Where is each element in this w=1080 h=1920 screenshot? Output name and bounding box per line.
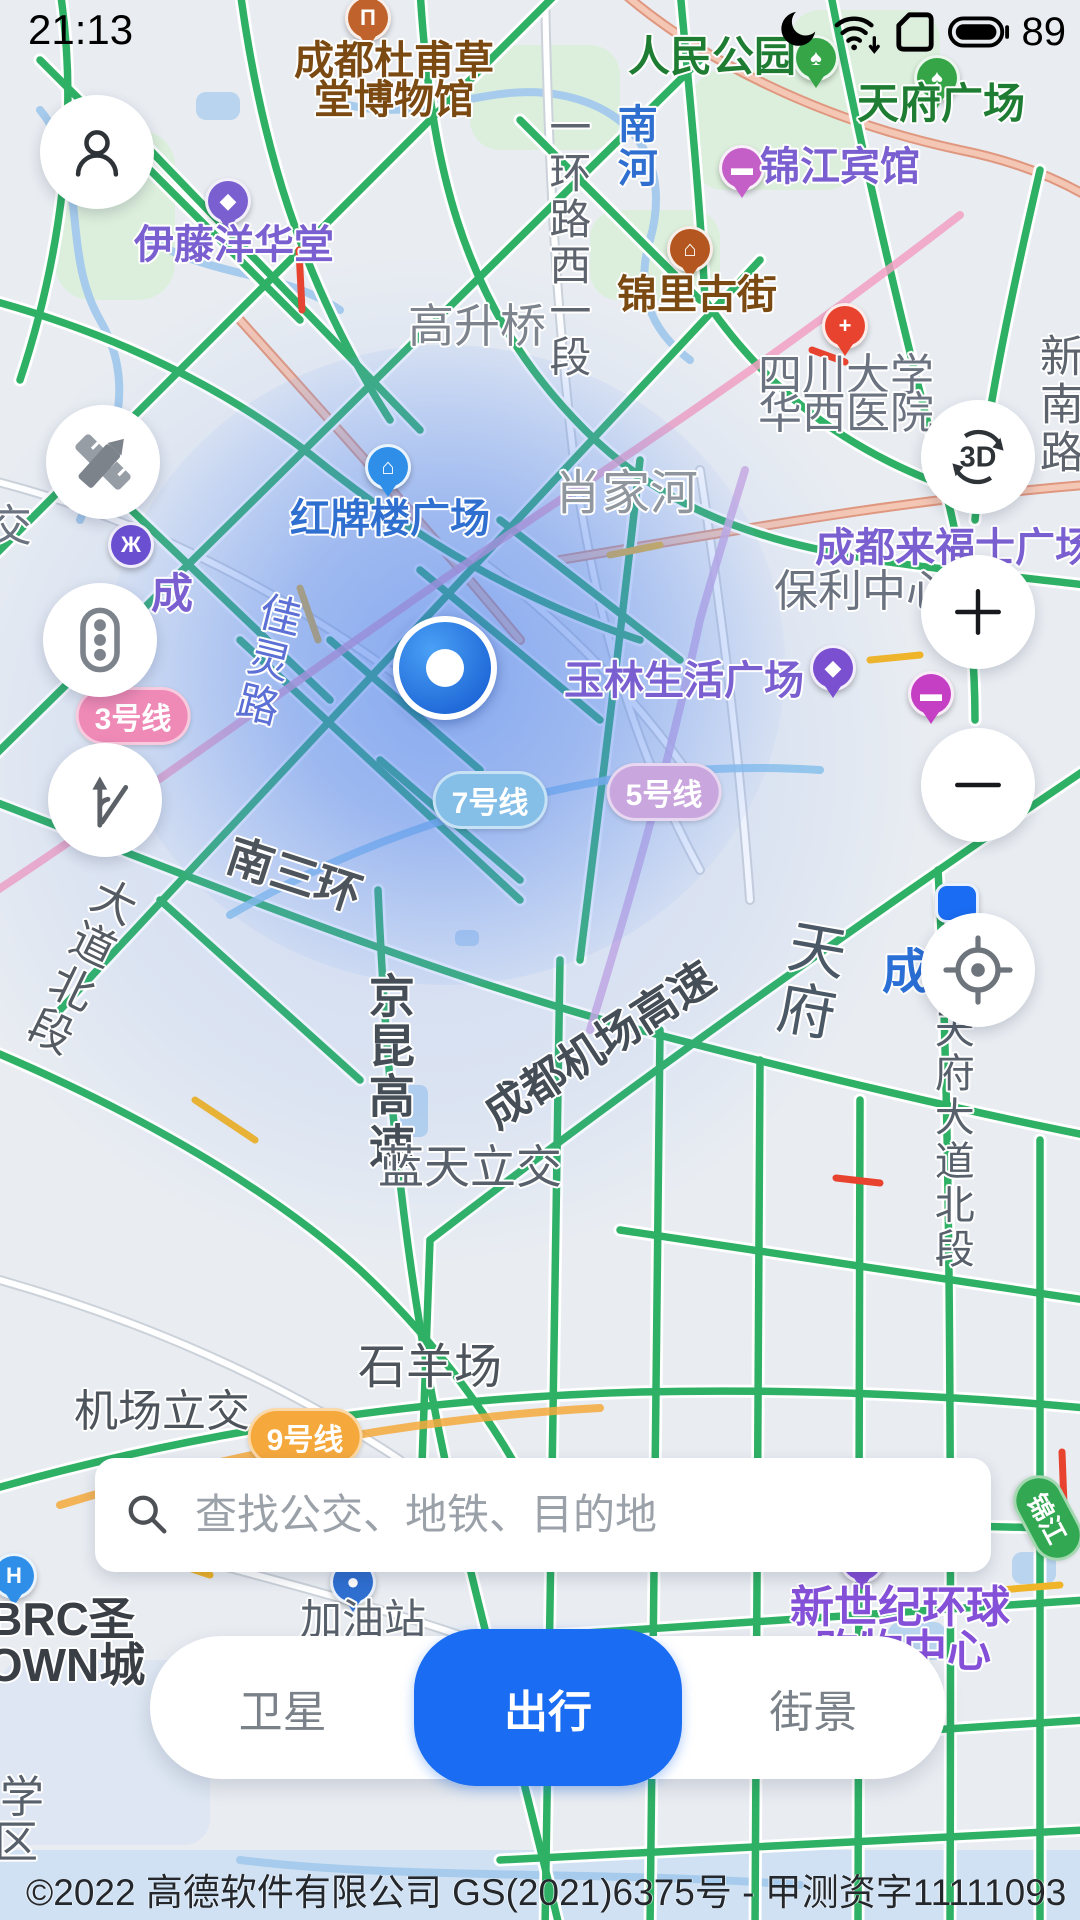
zoom-out-button[interactable] xyxy=(921,728,1035,842)
minus-icon xyxy=(941,748,1015,822)
transit-badge: 7号线 xyxy=(433,771,548,829)
status-bar: 21:13 xyxy=(0,0,1080,64)
wifi-icon xyxy=(832,8,882,56)
person-icon xyxy=(62,117,132,187)
sim-card-icon xyxy=(894,9,936,55)
transit-badge: 锦江 xyxy=(1004,1466,1080,1569)
ruler-pencil-icon xyxy=(64,423,142,501)
map-attribution: ©2022 高德软件有限公司 GS(2021)6375号 - 甲测资字11111… xyxy=(26,1862,1066,1916)
crosshair-icon xyxy=(938,930,1018,1010)
plus-icon xyxy=(941,575,1015,649)
3d-view-button[interactable]: 3D xyxy=(921,400,1035,514)
current-location-marker xyxy=(393,616,497,720)
status-time: 21:13 xyxy=(28,6,133,54)
tab-travel[interactable]: 出行 xyxy=(414,1629,682,1786)
svg-text:3D: 3D xyxy=(960,442,997,474)
transit-badge: 5号线 xyxy=(607,763,722,821)
search-bar xyxy=(95,1458,991,1572)
traffic-light-icon xyxy=(63,603,137,677)
search-icon xyxy=(125,1492,171,1538)
zoom-in-button[interactable] xyxy=(921,555,1035,669)
current-location-marker-core xyxy=(426,649,464,687)
route-direction-button[interactable] xyxy=(48,743,162,857)
tab-streetview[interactable]: 街景 xyxy=(681,1636,946,1779)
angle-arrow-icon xyxy=(68,763,142,837)
3d-rotate-icon: 3D xyxy=(938,417,1018,497)
map-mode-tabbar: 卫星 街景 出行 xyxy=(150,1636,946,1779)
mute-moon-icon xyxy=(776,10,820,54)
tab-satellite[interactable]: 卫星 xyxy=(150,1636,415,1779)
search-input[interactable] xyxy=(193,1490,961,1540)
battery-icon xyxy=(948,13,1010,51)
battery-percent: 89 xyxy=(1022,10,1067,55)
amap-screen: Π♠♠▬◆⌂+⌂Ж◆▬●◆H 成都杜甫草堂博物馆人民公园天府广场南河一环路西一段… xyxy=(0,0,1080,1920)
profile-button[interactable] xyxy=(40,95,154,209)
measure-tools-button[interactable] xyxy=(46,405,160,519)
locate-me-button[interactable] xyxy=(921,913,1035,1027)
traffic-toggle-button[interactable] xyxy=(43,583,157,697)
